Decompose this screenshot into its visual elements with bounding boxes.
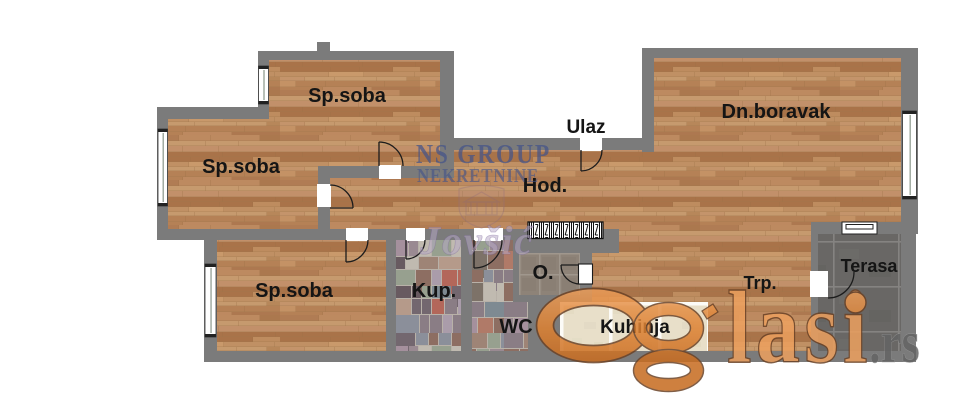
svg-text:Jovšić: Jovšić — [419, 218, 534, 263]
svg-text:Dn.boravak: Dn.boravak — [722, 101, 832, 123]
svg-text:WC: WC — [499, 316, 532, 338]
svg-text:.rs: .rs — [869, 308, 920, 375]
svg-text:Sp.soba: Sp.soba — [255, 280, 334, 302]
svg-text:Kup.: Kup. — [412, 280, 456, 302]
svg-text:Sp.soba: Sp.soba — [202, 156, 281, 178]
svg-text:O.: O. — [532, 262, 553, 284]
svg-text:Ulaz: Ulaz — [566, 117, 605, 138]
svg-text:NEKRETNINE: NEKRETNINE — [417, 165, 539, 187]
svg-text:lasi: lasi — [727, 269, 872, 384]
svg-text:Sp.soba: Sp.soba — [308, 85, 387, 107]
